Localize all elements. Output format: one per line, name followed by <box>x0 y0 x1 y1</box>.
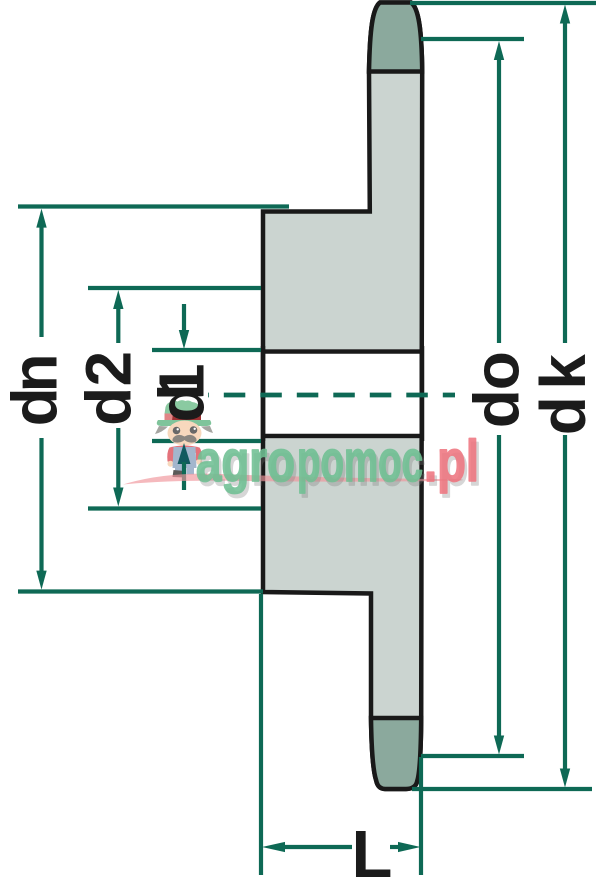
svg-text:dn: dn <box>0 353 70 426</box>
svg-text:pomoc: pomoc <box>297 428 423 493</box>
svg-text:d2: d2 <box>73 351 145 426</box>
svg-text:.pl: .pl <box>424 428 479 493</box>
svg-text:do: do <box>461 351 533 428</box>
svg-text:agro: agro <box>196 428 295 493</box>
svg-text:d1: d1 <box>146 363 218 422</box>
svg-text:L: L <box>352 817 393 889</box>
